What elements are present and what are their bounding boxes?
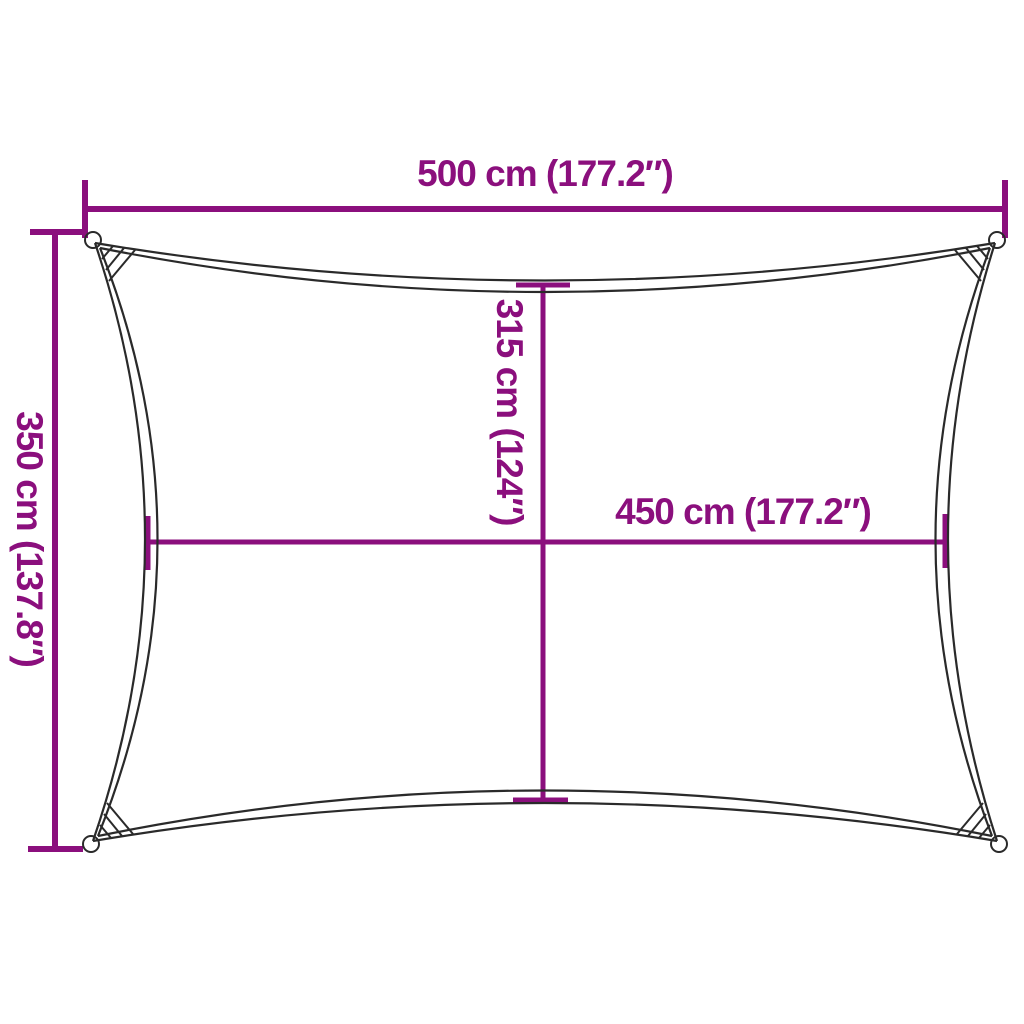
corner-loop-bottom-right	[991, 836, 1007, 852]
top-width-dimension-label: 500 cm (177.2″)	[85, 152, 1005, 196]
corner-loop-top-right	[989, 232, 1005, 248]
dimension-diagram: 500 cm (177.2″) 350 cm (137.8″) 315 cm (…	[0, 0, 1024, 1024]
corner-loop-top-left	[85, 232, 101, 248]
inner-width-dimension-label: 450 cm (177.2″)	[543, 490, 943, 534]
inner-height-dimension-label: 315 cm (124″)	[489, 297, 531, 527]
corner-loop-bottom-left	[83, 836, 99, 852]
left-height-dimension-label: 350 cm (137.8″)	[9, 399, 51, 679]
